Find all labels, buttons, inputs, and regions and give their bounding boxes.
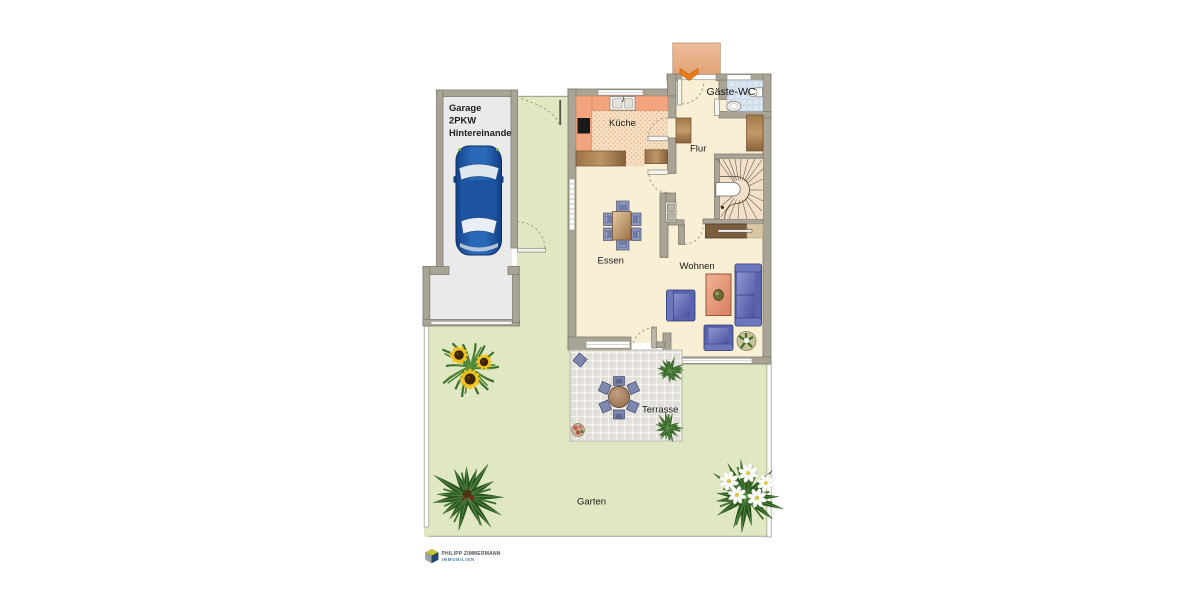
svg-text:Wohnen: Wohnen xyxy=(680,261,715,272)
svg-text:Garage: Garage xyxy=(449,102,481,113)
svg-text:Gäste-WC: Gäste-WC xyxy=(707,86,756,98)
svg-text:2PKW: 2PKW xyxy=(449,115,476,126)
svg-text:Essen: Essen xyxy=(598,256,624,267)
svg-text:Terrasse: Terrasse xyxy=(642,405,678,416)
svg-text:Hintereinande: Hintereinande xyxy=(449,127,512,138)
svg-text:Flur: Flur xyxy=(690,144,706,155)
svg-text:IMMOBILIEN: IMMOBILIEN xyxy=(442,557,475,562)
svg-text:Garten: Garten xyxy=(577,497,606,508)
svg-text:Küche: Küche xyxy=(609,118,636,129)
